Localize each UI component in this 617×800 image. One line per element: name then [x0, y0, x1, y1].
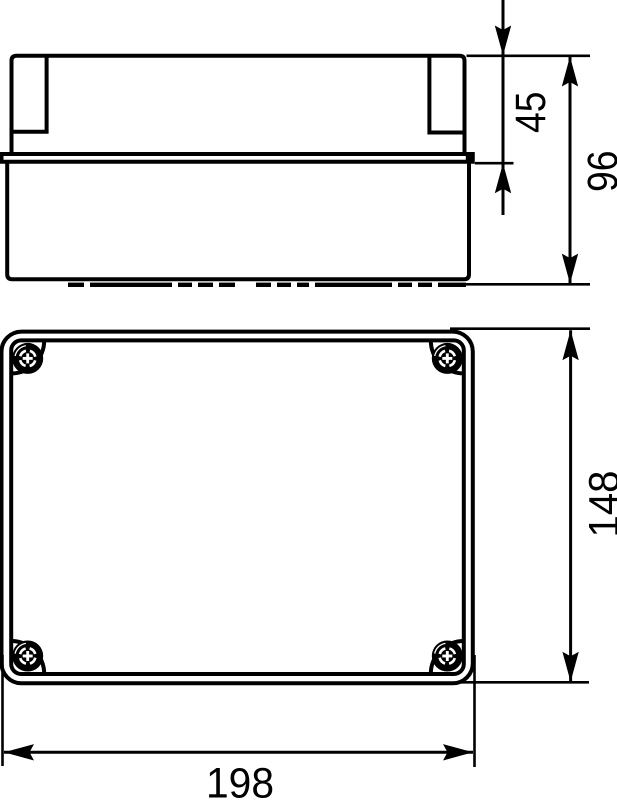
svg-text:96: 96	[580, 151, 617, 193]
svg-text:148: 148	[581, 471, 617, 538]
svg-text:45: 45	[508, 92, 555, 134]
svg-text:198: 198	[206, 761, 274, 800]
